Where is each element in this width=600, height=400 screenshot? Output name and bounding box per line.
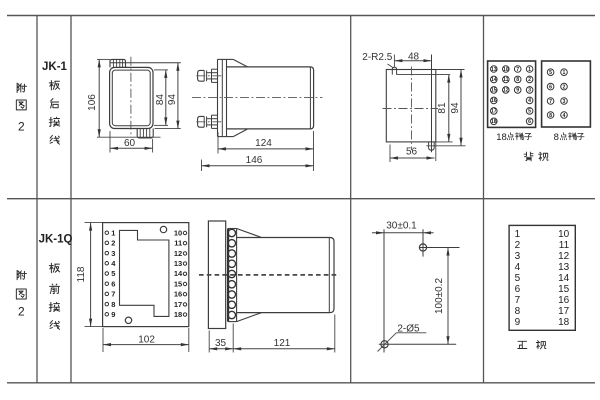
svg-text:17: 17 (558, 306, 570, 317)
svg-text:9: 9 (516, 88, 519, 94)
svg-text:5: 5 (549, 70, 552, 76)
svg-text:13: 13 (491, 67, 497, 73)
svg-text:6: 6 (515, 284, 521, 295)
svg-text:8: 8 (554, 132, 559, 143)
svg-text:1: 1 (515, 229, 521, 240)
svg-text:18: 18 (496, 132, 507, 143)
svg-text:7: 7 (516, 67, 519, 73)
svg-text:8: 8 (549, 113, 552, 119)
svg-text:60: 60 (124, 138, 136, 149)
svg-text:16: 16 (491, 98, 497, 104)
svg-text:2: 2 (18, 305, 25, 319)
svg-text:12: 12 (558, 251, 570, 262)
svg-text:102: 102 (138, 335, 155, 346)
svg-text:11: 11 (559, 240, 570, 251)
svg-text:6: 6 (528, 119, 531, 125)
svg-text:14: 14 (558, 273, 570, 284)
svg-text:8: 8 (111, 300, 115, 309)
svg-text:2: 2 (563, 84, 566, 90)
svg-text:2-R2.5: 2-R2.5 (362, 52, 392, 63)
svg-text:7: 7 (549, 99, 552, 105)
svg-text:16: 16 (558, 295, 570, 306)
svg-text:JK-1Q: JK-1Q (39, 233, 73, 245)
svg-text:JK-1: JK-1 (42, 61, 68, 73)
svg-text:4: 4 (563, 113, 566, 119)
svg-text:10: 10 (174, 228, 182, 237)
svg-text:8: 8 (516, 77, 519, 83)
svg-text:3: 3 (111, 249, 115, 258)
svg-text:12: 12 (174, 249, 182, 258)
svg-text:1: 1 (528, 67, 531, 73)
svg-text:6: 6 (111, 279, 115, 288)
svg-text:118: 118 (76, 266, 87, 282)
svg-text:15: 15 (174, 279, 182, 288)
svg-text:3: 3 (515, 251, 521, 262)
svg-text:9: 9 (515, 317, 521, 328)
svg-text:35: 35 (215, 338, 227, 349)
svg-text:2: 2 (18, 120, 25, 134)
svg-text:5: 5 (111, 269, 115, 278)
svg-text:15: 15 (491, 88, 497, 94)
svg-text:146: 146 (246, 155, 263, 166)
svg-text:16: 16 (174, 290, 182, 299)
svg-text:17: 17 (174, 300, 182, 309)
svg-text:7: 7 (111, 290, 115, 299)
svg-text:94: 94 (167, 94, 178, 106)
svg-text:121: 121 (274, 338, 291, 349)
svg-text:11: 11 (174, 239, 182, 248)
svg-text:94: 94 (450, 102, 461, 114)
svg-text:18: 18 (558, 317, 570, 328)
svg-text:18: 18 (491, 119, 497, 125)
svg-text:10: 10 (558, 229, 570, 240)
svg-text:7: 7 (515, 295, 521, 306)
svg-text:9: 9 (111, 310, 115, 319)
svg-text:13: 13 (174, 259, 182, 268)
svg-text:3: 3 (563, 99, 566, 105)
svg-text:14: 14 (174, 269, 183, 278)
svg-text:13: 13 (558, 262, 570, 273)
svg-text:4: 4 (528, 98, 531, 104)
svg-text:6: 6 (549, 84, 552, 90)
svg-text:11: 11 (503, 77, 509, 83)
svg-text:5: 5 (528, 109, 531, 115)
svg-text:2: 2 (528, 77, 531, 83)
svg-text:3: 3 (528, 88, 531, 94)
svg-text:4: 4 (515, 262, 521, 273)
svg-text:17: 17 (491, 109, 497, 115)
svg-text:2: 2 (111, 239, 115, 248)
svg-text:81: 81 (437, 102, 448, 114)
svg-text:4: 4 (111, 259, 116, 268)
svg-text:8: 8 (515, 306, 521, 317)
svg-text:10: 10 (503, 67, 509, 73)
svg-text:56: 56 (406, 147, 418, 158)
svg-text:106: 106 (87, 94, 98, 111)
svg-text:15: 15 (558, 284, 570, 295)
svg-text:18: 18 (174, 310, 182, 319)
svg-text:48: 48 (408, 51, 420, 62)
svg-text:5: 5 (515, 273, 521, 284)
svg-text:84: 84 (155, 94, 166, 106)
svg-text:14: 14 (491, 77, 497, 83)
svg-text:124: 124 (255, 138, 272, 149)
svg-text:12: 12 (503, 88, 509, 94)
svg-text:1: 1 (111, 228, 115, 237)
svg-text:100±0.2: 100±0.2 (434, 278, 445, 315)
svg-text:30±0.1: 30±0.1 (386, 220, 417, 231)
svg-text:2: 2 (515, 240, 521, 251)
svg-text:1: 1 (563, 70, 566, 76)
